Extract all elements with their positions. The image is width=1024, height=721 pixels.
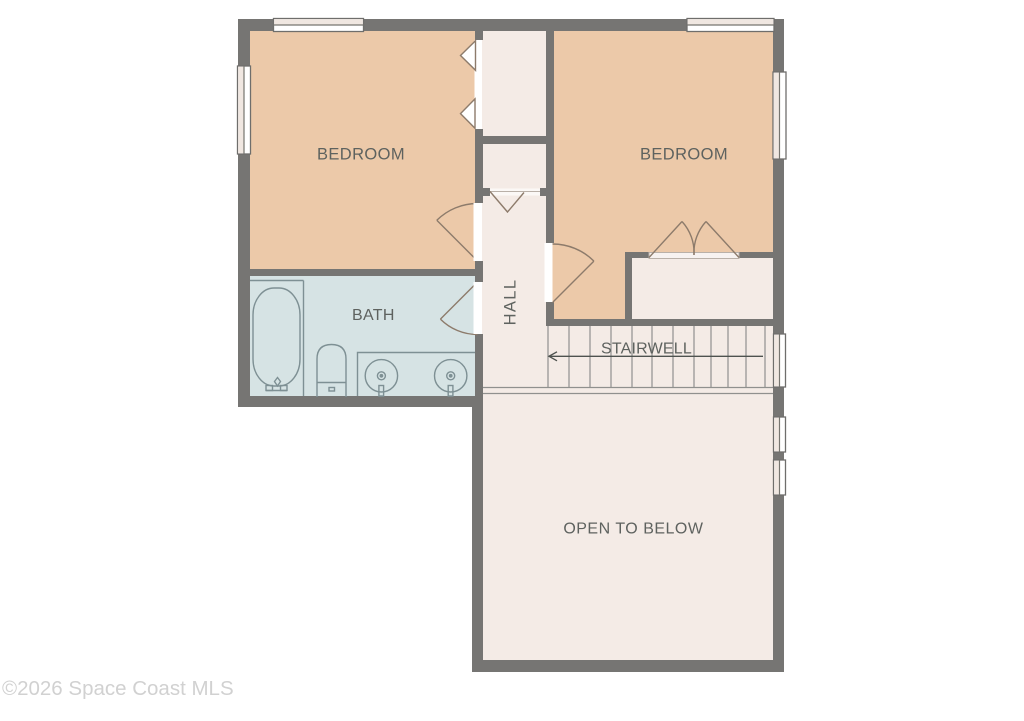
svg-text:HALL: HALL: [502, 279, 520, 326]
svg-text:STAIRWELL: STAIRWELL: [601, 341, 692, 358]
svg-text:BEDROOM: BEDROOM: [640, 146, 728, 164]
svg-text:BEDROOM: BEDROOM: [317, 146, 405, 164]
svg-text:BATH: BATH: [352, 307, 395, 324]
svg-text:©2026 Space Coast MLS: ©2026 Space Coast MLS: [2, 677, 234, 700]
svg-text:OPEN TO BELOW: OPEN TO BELOW: [563, 521, 704, 538]
